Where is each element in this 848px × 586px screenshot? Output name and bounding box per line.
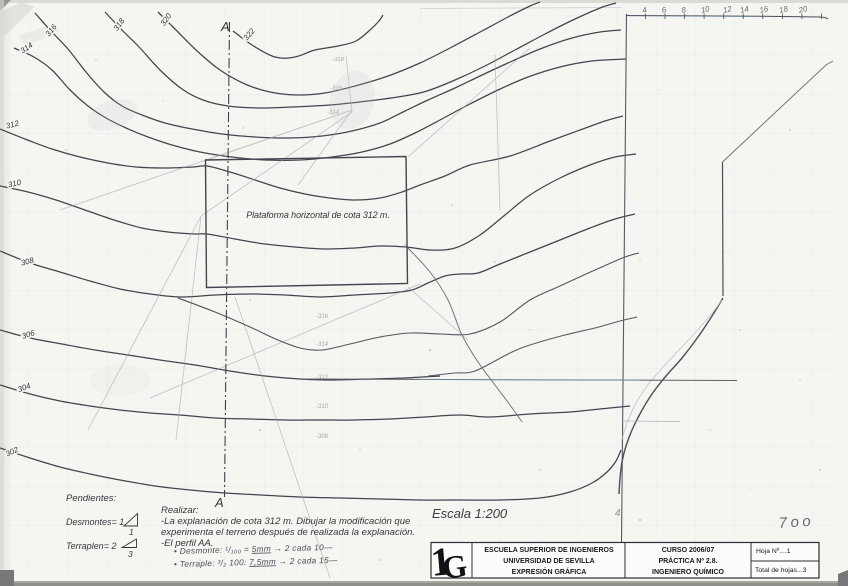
svg-text:INGENIERO QUÍMICO: INGENIERO QUÍMICO [652,567,725,576]
svg-text:UNIVERSIDAD DE SEVILLA: UNIVERSIDAD DE SEVILLA [503,558,594,565]
svg-text:Desmontes= 1: Desmontes= 1 [66,517,124,527]
svg-text:3: 3 [128,549,133,559]
svg-text:A: A [220,19,230,34]
svg-text:PRÁCTICA Nº 2.8.: PRÁCTICA Nº 2.8. [658,556,717,565]
svg-text:ESCUELA SUPERIOR DE INGENIEROS: ESCUELA SUPERIOR DE INGENIEROS [484,547,614,554]
svg-text:G: G [440,547,469,586]
svg-text:Pendientes:: Pendientes: [66,493,117,504]
svg-text:1: 1 [129,527,134,537]
svg-text:Terraplen= 2: Terraplen= 2 [66,541,116,551]
svg-text:-310: -310 [316,404,329,410]
svg-text:-La explanación de cota 312 m.: -La explanación de cota 312 m. Dibujar l… [161,516,410,527]
svg-text:-318: -318 [332,57,345,63]
svg-text:CURSO 2006/07: CURSO 2006/07 [662,547,715,554]
svg-text:Plataforma horizontal de cota: Plataforma horizontal de cota 312 m. [246,210,389,220]
svg-text:A: A [214,495,224,510]
svg-text:Realizar:: Realizar: [161,505,199,516]
svg-text:EXPRESIÓN GRÁFICA: EXPRESIÓN GRÁFICA [512,567,587,576]
svg-text:-316: -316 [316,314,329,320]
svg-text:experimenta el terreno después: experimenta el terreno después de realiz… [161,527,415,538]
svg-text:Escala 1:200: Escala 1:200 [432,506,508,521]
svg-text:-308: -308 [316,434,329,440]
svg-text:-314: -314 [316,342,329,348]
svg-text:4: 4 [615,508,621,519]
svg-text:Hoja Nº....1: Hoja Nº....1 [756,548,791,555]
svg-text:7oo: 7oo [778,513,815,532]
svg-text:-312: -312 [316,375,329,381]
svg-text:Total de hojas...3: Total de hojas...3 [755,567,807,574]
